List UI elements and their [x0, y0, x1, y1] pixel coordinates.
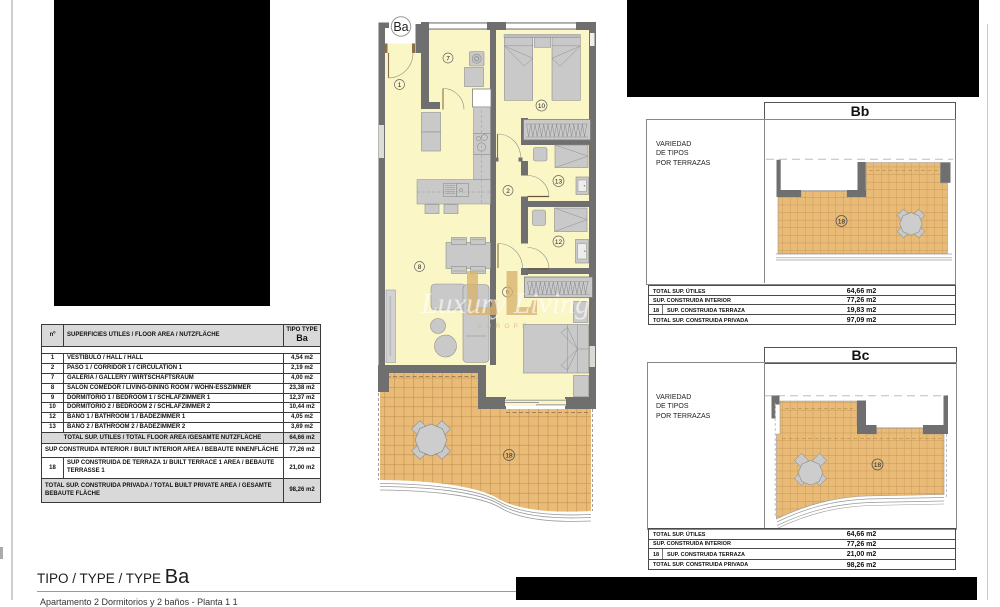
svg-text:12: 12 [555, 239, 563, 246]
svg-text:8: 8 [418, 264, 422, 271]
svg-text:1: 1 [398, 82, 402, 89]
svg-text:Ba: Ba [393, 20, 408, 34]
svg-text:2: 2 [506, 188, 510, 195]
svg-text:Luxury Living: Luxury Living [420, 287, 590, 320]
svg-text:18: 18 [505, 452, 513, 459]
svg-text:10: 10 [538, 103, 546, 110]
svg-text:7: 7 [446, 55, 450, 62]
svg-text:13: 13 [555, 178, 563, 185]
svg-text:EUROPE: EUROPE [478, 323, 531, 330]
